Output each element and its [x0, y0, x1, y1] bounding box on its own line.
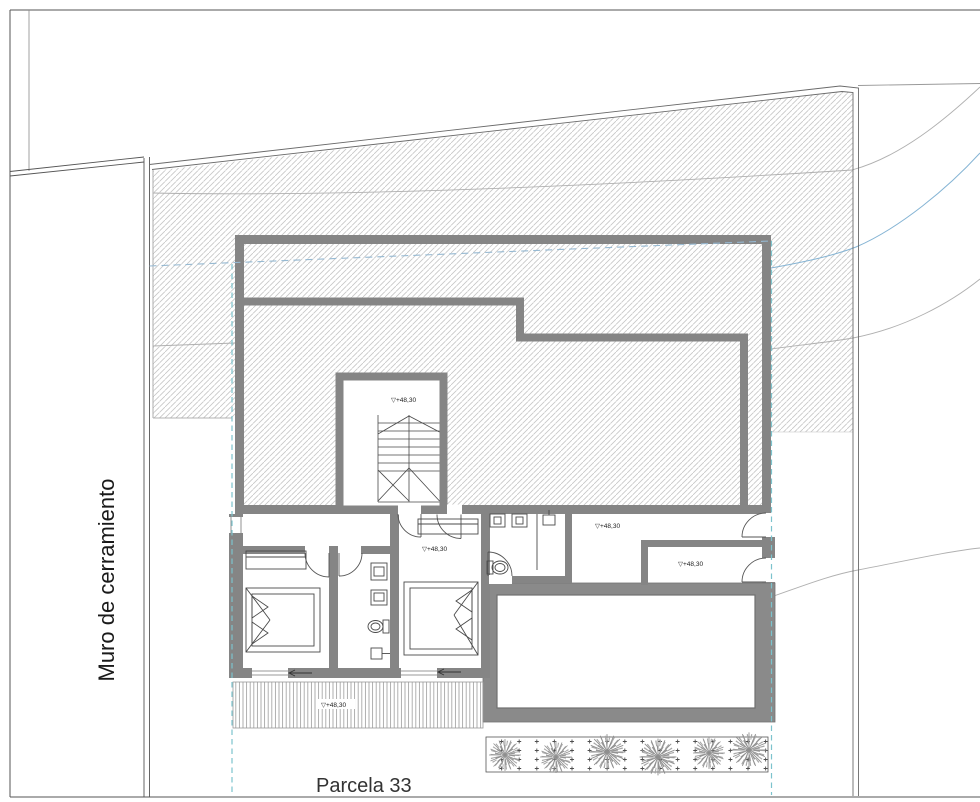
- parcel-label: Parcela 33: [316, 775, 412, 797]
- pool: [497, 595, 755, 708]
- stairwell: ▽+48,30: [340, 377, 444, 510]
- elevation-mark-hall: ▽+48,30: [595, 523, 620, 530]
- elevation-mark-guest-room: ▽+48,30: [678, 561, 703, 568]
- site-plan-canvas: ▽+48,30: [0, 0, 980, 802]
- bush-icon: [540, 741, 572, 773]
- bush-icon: [640, 739, 677, 776]
- deck-terrace: ▽+48,30: [233, 682, 483, 728]
- pool-terrace: [483, 583, 775, 722]
- floor-plan-drawing: ▽+48,30: [0, 0, 980, 802]
- elevation-mark-deck: ▽+48,30: [321, 702, 346, 709]
- bush-icon: [489, 739, 521, 771]
- bush-icon: [731, 732, 766, 767]
- bedroom2-door-opening: [398, 505, 421, 516]
- perimeter-wall-label: Muro de cerramiento: [94, 479, 119, 682]
- bush-icon: [589, 734, 625, 770]
- elevation-mark-stairwell: ▽+48,30: [391, 397, 416, 404]
- bush-icon: [693, 737, 725, 769]
- stair-door-opening: [447, 505, 462, 516]
- elevation-mark-bedroom: ▽+48,30: [422, 546, 447, 553]
- planting-bed: [486, 732, 768, 775]
